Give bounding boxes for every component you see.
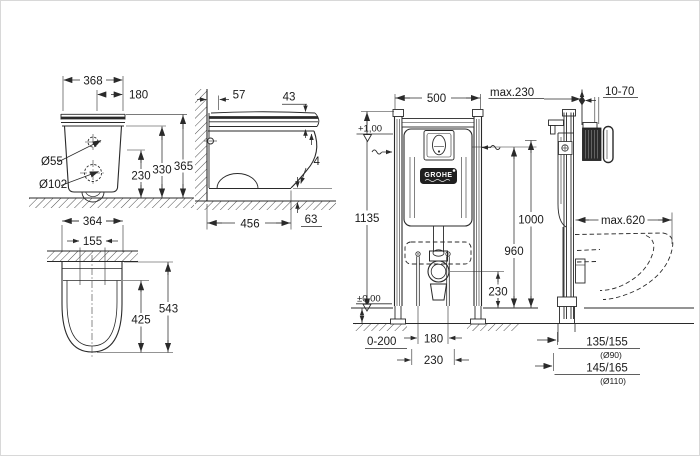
dim-plan-width: 364 <box>83 216 103 228</box>
dim-frame-width: 500 <box>427 93 446 105</box>
view-frame-front: 500 1135 GROHE <box>350 92 695 368</box>
slab-hatch <box>467 324 519 331</box>
dim-screed-range: 0-200 <box>367 336 396 348</box>
level-zero-label: ±0,00 <box>357 294 381 305</box>
wall-bracket <box>549 120 564 126</box>
level-marker-icon <box>364 135 372 142</box>
dim-top-fixing-width: 180 <box>129 90 148 102</box>
dim-height-3: 365 <box>174 161 193 173</box>
dim-height-1: 230 <box>131 171 150 183</box>
dim-outlet-height: 230 <box>488 287 507 299</box>
dim-height-2: 330 <box>152 165 171 177</box>
dim-partial: 4 <box>314 156 321 168</box>
dimension-drawing: Ø55 Ø102 368 180 365 330 230 <box>1 1 700 457</box>
view-wc-plan: 364 155 543 425 <box>47 215 183 359</box>
dim-plate-adjust: 10-70 <box>605 86 634 98</box>
frame-foot <box>391 319 406 324</box>
push-button-cap <box>604 127 614 163</box>
dim-depth: 456 <box>240 219 259 231</box>
dim-actuation-height: 1000 <box>518 215 544 227</box>
view-wc-front: Ø55 Ø102 368 180 365 330 230 <box>29 76 194 209</box>
water-supply-arrow-icon <box>372 150 392 154</box>
ground-hatch <box>29 198 194 208</box>
dim-fixing-width: 155 <box>83 236 102 248</box>
view-wc-side: 57 43 4 456 63 <box>195 89 336 231</box>
dim-inner-length: 425 <box>131 315 150 327</box>
ground-hatch <box>195 201 336 210</box>
dim-max-bowl-depth: max.620 <box>601 215 645 227</box>
registered-mark-dot <box>453 169 456 172</box>
dim-supply-diameter: Ø55 <box>41 156 63 168</box>
frame-foot <box>471 319 486 324</box>
dim-outlet-diameter: Ø102 <box>39 179 67 191</box>
dim-stub-upper-dia: (Ø90) <box>600 350 622 360</box>
dim-fixing-spacing: 230 <box>424 355 443 367</box>
dim-overall-width: 368 <box>83 76 102 88</box>
view-frame-side: max.230 10-70 <box>489 86 695 386</box>
wall-reference-marker <box>579 96 585 106</box>
water-supply-arrow-icon <box>482 145 500 149</box>
wall-hatch <box>195 89 207 201</box>
dim-seat-thickness: 43 <box>283 92 296 104</box>
dim-stub-lower-dia: (Ø110) <box>600 376 626 386</box>
dim-max-wall-depth: max.230 <box>490 87 534 99</box>
technical-drawing-sheet: Ø55 Ø102 368 180 365 330 230 <box>0 0 700 456</box>
dim-stub-upper: 135/155 <box>586 337 628 349</box>
dim-underside-clearance: 63 <box>305 214 318 226</box>
dim-frame-height: 1135 <box>355 213 380 225</box>
wall-hatch <box>47 251 138 262</box>
dim-rod-spacing: 180 <box>424 334 443 346</box>
grohe-logo-text: GROHE <box>424 172 452 179</box>
dim-supply-height: 960 <box>504 246 523 258</box>
dim-overall-length: 543 <box>159 304 178 316</box>
dim-stub-lower: 145/165 <box>586 363 628 375</box>
dim-wall-to-fixing: 57 <box>233 90 246 102</box>
bowl-outline-dashed <box>575 233 673 300</box>
level-plus-label: +1,00 <box>358 124 382 135</box>
slab-hatch <box>355 324 407 331</box>
